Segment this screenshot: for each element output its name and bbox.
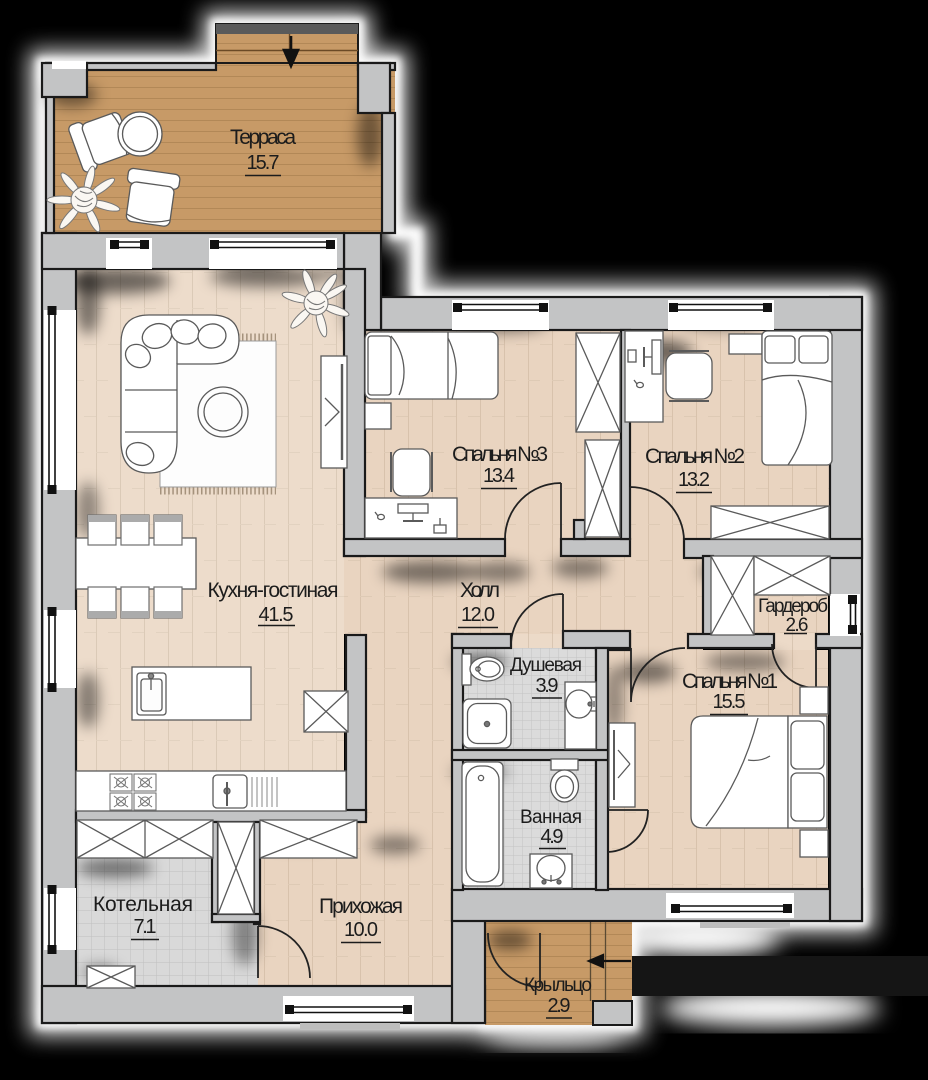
svg-text:Прихожая: Прихожая xyxy=(319,895,403,918)
svg-text:Ванная: Ванная xyxy=(520,807,582,828)
svg-text:4.9: 4.9 xyxy=(541,826,564,848)
svg-text:2.9: 2.9 xyxy=(548,995,571,1017)
svg-text:15.7: 15.7 xyxy=(247,152,280,174)
svg-text:Котельная: Котельная xyxy=(93,893,193,916)
svg-text:Спальня №2: Спальня №2 xyxy=(645,445,745,468)
svg-text:Холл: Холл xyxy=(460,579,500,602)
svg-text:Терраса: Терраса xyxy=(230,126,296,149)
svg-text:Душевая: Душевая xyxy=(510,655,582,676)
svg-text:41.5: 41.5 xyxy=(259,604,294,626)
svg-text:Спальня №1: Спальня №1 xyxy=(682,670,778,693)
svg-text:10.0: 10.0 xyxy=(344,919,378,941)
svg-text:7.1: 7.1 xyxy=(134,916,157,938)
svg-text:Крыльцо: Крыльцо xyxy=(524,975,592,996)
svg-text:3.9: 3.9 xyxy=(536,675,559,697)
svg-text:13.2: 13.2 xyxy=(678,469,710,491)
svg-text:12.0: 12.0 xyxy=(461,604,495,626)
svg-text:13.4: 13.4 xyxy=(483,465,515,487)
svg-text:Кухня-гостиная: Кухня-гостиная xyxy=(208,579,339,602)
svg-text:Спальня №3: Спальня №3 xyxy=(452,443,548,466)
svg-text:15.5: 15.5 xyxy=(713,691,746,713)
svg-text:Гардероб: Гардероб xyxy=(758,596,828,617)
